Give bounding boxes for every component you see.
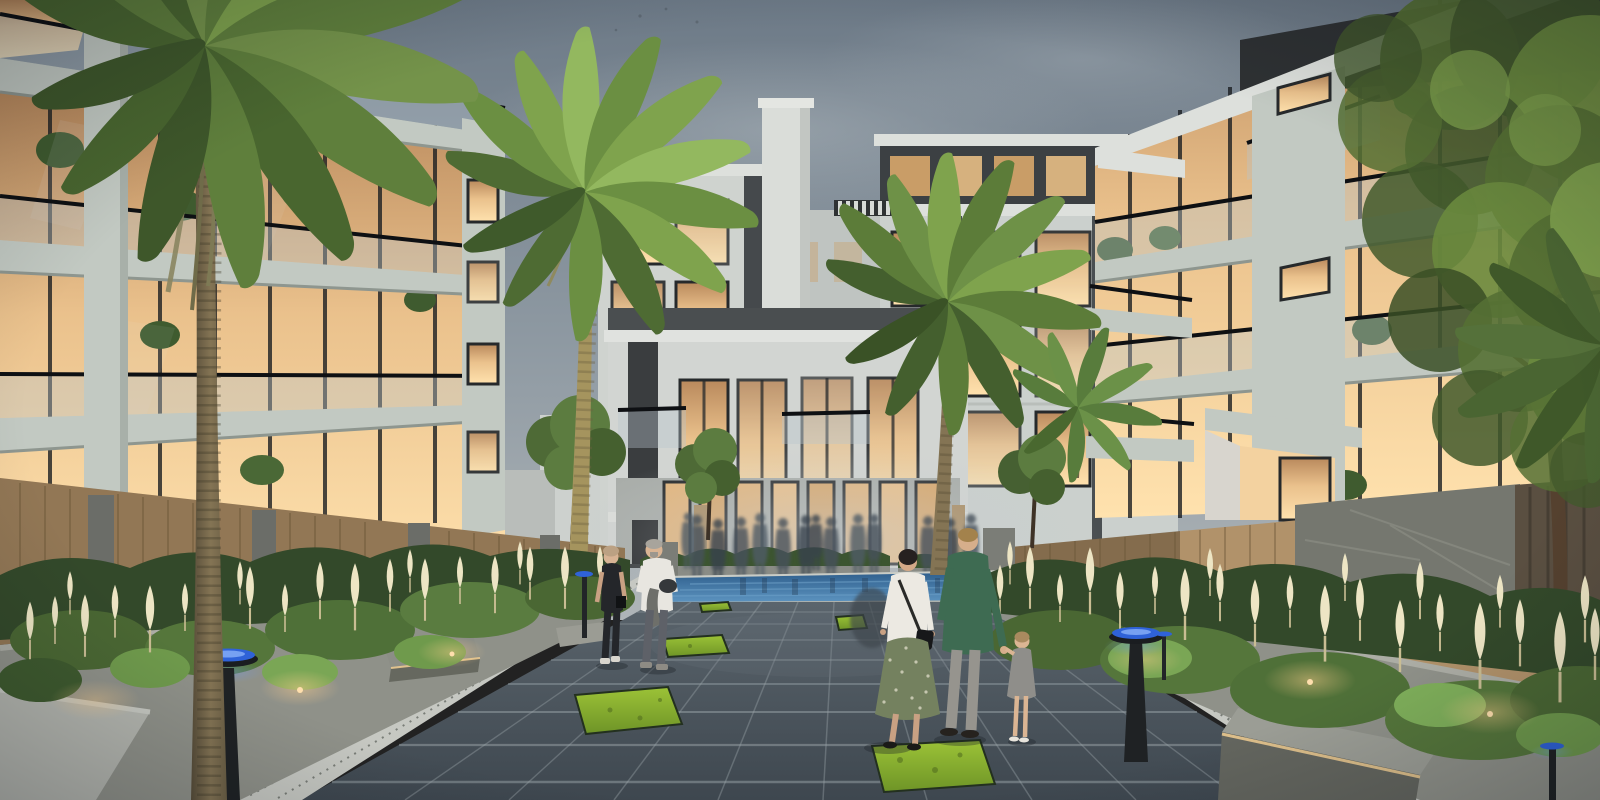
- vignette-overlay: [0, 0, 1600, 800]
- courtyard-render: [0, 0, 1600, 800]
- rendering-canvas: [0, 0, 1600, 800]
